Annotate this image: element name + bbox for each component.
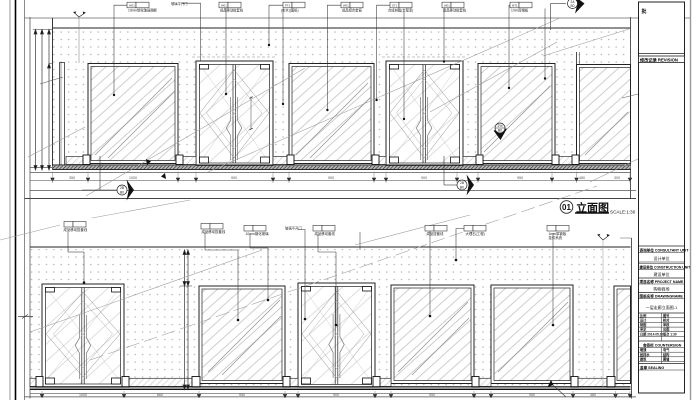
svg-text:B0: B0 [498, 129, 502, 133]
svg-text:2%: 2% [498, 124, 503, 128]
svg-text:1000: 1000 [79, 393, 87, 397]
svg-text:图号: 图号 [663, 313, 670, 318]
svg-text:一层走廊立面图-1: 一层走廊立面图-1 [646, 304, 678, 310]
svg-text:W01: W01 [221, 3, 227, 7]
svg-text:项目名称 PROJECT NAME: 项目名称 PROJECT NAME [640, 279, 685, 284]
svg-text:900: 900 [333, 393, 339, 397]
svg-text:900: 900 [421, 176, 427, 180]
svg-text:日期 2014.05.20: 日期 2014.05.20 [640, 331, 663, 336]
svg-text:成品移动拢套线: 成品移动拢套线 [64, 227, 88, 232]
svg-text:校对: 校对 [663, 317, 670, 322]
svg-text:2B: 2B [460, 181, 464, 185]
svg-text:B0: B0 [460, 186, 464, 190]
svg-text:审定: 审定 [640, 327, 647, 332]
svg-text:建筑: 建筑 [639, 357, 647, 362]
svg-text:300: 300 [614, 176, 620, 180]
svg-text:图纸名称 DRAWINGNAME: 图纸名称 DRAWINGNAME [640, 294, 684, 299]
svg-text:幕墙: 幕墙 [662, 357, 670, 362]
svg-text:建设单位 CONSTRUCTION UNIT: 建设单位 CONSTRUCTION UNIT [640, 265, 692, 270]
svg-text:电气: 电气 [663, 347, 670, 352]
svg-text:会签栏 COUNTERSIGN: 会签栏 COUNTERSIGN [642, 342, 682, 347]
svg-text:批: 批 [642, 8, 647, 15]
svg-text:合成树脂(工程漆): 合成树脂(工程漆) [388, 8, 413, 13]
svg-text:成品拢套线: 成品拢套线 [427, 231, 445, 236]
svg-text:成品移动拢套线: 成品移动拢套线 [202, 229, 226, 234]
svg-text:设计: 设计 [640, 317, 647, 322]
svg-text:玻璃平开门: 玻璃平开门 [285, 226, 303, 231]
svg-text:玻璃平开门: 玻璃平开门 [171, 1, 187, 6]
svg-text:SCALE:1:30: SCALE:1:30 [610, 210, 636, 215]
svg-text:建设单位: 建设单位 [654, 271, 670, 277]
svg-text:950: 950 [529, 393, 535, 397]
svg-text:B0: B0 [120, 191, 124, 195]
svg-text:B0: B0 [571, 4, 575, 8]
svg-text:MT1: MT1 [512, 3, 518, 7]
svg-text:ST1: ST1 [392, 3, 398, 7]
svg-text:860: 860 [157, 393, 163, 397]
svg-text:W01: W01 [129, 3, 135, 7]
svg-text:2B: 2B [120, 186, 124, 190]
svg-text:PT1: PT1 [285, 3, 291, 7]
svg-text:W01: W01 [343, 3, 349, 7]
svg-text:设计单位: 设计单位 [654, 255, 670, 261]
svg-text:(实木)(图纸): (实木)(图纸) [281, 8, 299, 13]
svg-text:暖通: 暖通 [640, 347, 647, 352]
svg-text:购物商场: 购物商场 [654, 286, 670, 292]
svg-text:01: 01 [562, 203, 571, 212]
svg-text:成品移动拢套线: 成品移动拢套线 [443, 8, 467, 13]
svg-text:1mm厚钢板: 1mm厚钢板 [511, 8, 529, 13]
svg-text:成品移动套线: 成品移动套线 [315, 231, 336, 236]
svg-text:大理石(工程): 大理石(工程) [466, 231, 485, 236]
svg-text:480: 480 [579, 176, 585, 180]
svg-text:950: 950 [429, 393, 435, 397]
svg-text:950: 950 [239, 393, 245, 397]
svg-text:审核: 审核 [663, 322, 670, 327]
svg-text:结构: 结构 [663, 352, 670, 357]
svg-text:900: 900 [231, 176, 237, 180]
svg-text:给排水: 给排水 [640, 352, 650, 357]
svg-text:1000: 1000 [129, 176, 137, 180]
svg-text:350: 350 [69, 176, 75, 180]
svg-text:480: 480 [590, 393, 596, 397]
svg-text:修改记录 REVISION: 修改记录 REVISION [639, 57, 678, 64]
svg-text:咨询单位 CONSULTANT UNIT: 咨询单位 CONSULTANT UNIT [640, 248, 690, 253]
svg-text:10mm钢化玻璃隔断: 10mm钢化玻璃隔断 [128, 8, 158, 13]
svg-text:950: 950 [517, 176, 523, 180]
svg-text:W01: W01 [444, 3, 450, 7]
svg-text:成品移动拢套线: 成品移动拢套线 [220, 8, 244, 13]
svg-text:出图: 出图 [663, 327, 669, 332]
svg-text:挂件系统: 挂件系统 [549, 235, 563, 240]
svg-text:成品铝合金窗: 成品铝合金窗 [342, 8, 362, 13]
svg-text:制图: 制图 [640, 322, 646, 327]
svg-text:950: 950 [328, 176, 334, 180]
svg-text:盖章 SEALING: 盖章 SEALING [640, 365, 664, 370]
svg-text:比例: 比例 [640, 313, 647, 318]
svg-text:版次 1:30: 版次 1:30 [663, 331, 677, 336]
svg-text:10mm钢化玻璃: 10mm钢化玻璃 [246, 231, 270, 236]
